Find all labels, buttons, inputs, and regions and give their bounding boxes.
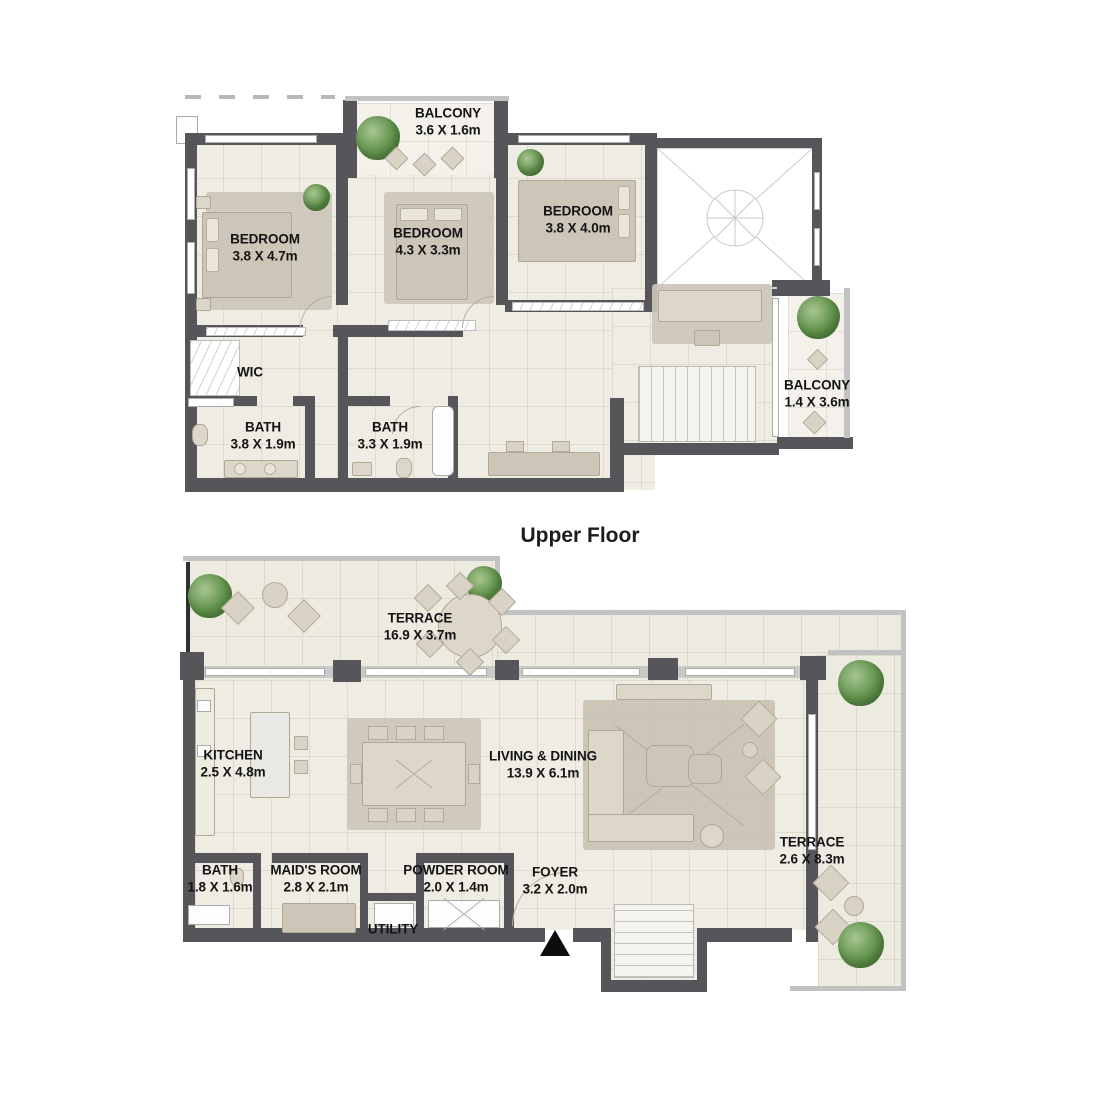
wall bbox=[601, 980, 707, 992]
sink bbox=[352, 462, 372, 476]
vanity-cross bbox=[444, 906, 484, 922]
wall bbox=[648, 138, 820, 148]
room-dims: 13.9 X 6.1m bbox=[489, 765, 597, 782]
terrace-parapet bbox=[901, 610, 906, 990]
wall bbox=[336, 133, 348, 305]
terrace-parapet bbox=[495, 610, 906, 615]
pillow bbox=[206, 218, 219, 242]
window bbox=[522, 668, 640, 676]
column bbox=[648, 658, 678, 680]
room-label-kitchen: KITCHEN 2.5 X 4.8m bbox=[200, 747, 265, 782]
toilet bbox=[396, 458, 412, 478]
sink bbox=[234, 463, 246, 475]
column bbox=[495, 660, 519, 680]
wardrobe bbox=[512, 302, 644, 311]
dining-chair bbox=[424, 808, 444, 822]
room-label-bath-middle: BATH 3.3 X 1.9m bbox=[357, 419, 422, 454]
room-label-balcony-top: BALCONY 3.6 X 1.6m bbox=[415, 105, 481, 140]
room-name: BATH bbox=[187, 862, 252, 879]
sofa bbox=[658, 290, 762, 322]
room-name: BATH bbox=[230, 419, 295, 436]
column bbox=[333, 660, 361, 682]
floor-plan: BEDROOM 3.8 X 4.7m BEDROOM 4.3 X 3.3m BE… bbox=[0, 0, 1100, 1100]
wall bbox=[707, 928, 792, 942]
room-name: BATH bbox=[357, 419, 422, 436]
room-label-maids-room: MAID'S ROOM 2.8 X 2.1m bbox=[270, 862, 361, 897]
window bbox=[808, 714, 816, 850]
coffee-table bbox=[694, 330, 720, 346]
entrance-arrow-icon bbox=[540, 930, 570, 956]
balcony-parapet bbox=[844, 288, 850, 438]
shower bbox=[188, 905, 230, 925]
window bbox=[187, 168, 195, 220]
room-dims: 1.4 X 3.6m bbox=[784, 394, 850, 411]
room-dims: 2.0 X 1.4m bbox=[403, 879, 508, 896]
table-cross bbox=[396, 758, 432, 790]
terrace-table bbox=[262, 582, 288, 608]
window bbox=[518, 135, 630, 143]
room-name: BEDROOM bbox=[230, 231, 300, 248]
room-label-foyer: FOYER 3.2 X 2.0m bbox=[522, 864, 587, 899]
room-label-wic: WIC bbox=[237, 363, 263, 380]
room-name: TERRACE bbox=[384, 610, 456, 627]
coffee-table bbox=[646, 745, 694, 787]
pillow bbox=[206, 248, 219, 272]
wall bbox=[183, 928, 545, 942]
desk bbox=[488, 452, 600, 476]
room-dims: 2.8 X 2.1m bbox=[270, 879, 361, 896]
dining-chair bbox=[350, 764, 362, 784]
dining-chair bbox=[424, 726, 444, 740]
room-name: UTILITY bbox=[368, 920, 418, 937]
bathtub bbox=[432, 406, 454, 476]
dining-chair bbox=[468, 764, 480, 784]
room-label-bedroom-middle: BEDROOM 4.3 X 3.3m bbox=[393, 225, 463, 260]
pillow bbox=[618, 186, 630, 210]
room-label-bedroom-left: BEDROOM 3.8 X 4.7m bbox=[230, 231, 300, 266]
room-dims: 16.9 X 3.7m bbox=[384, 627, 456, 644]
room-dims: 2.6 X 8.3m bbox=[779, 851, 844, 868]
chair bbox=[506, 441, 524, 452]
room-dims: 4.3 X 3.3m bbox=[393, 242, 463, 259]
room-dims: 3.8 X 1.9m bbox=[230, 436, 295, 453]
room-name: TERRACE bbox=[779, 834, 844, 851]
cropped-label-artifact bbox=[185, 95, 335, 99]
room-label-balcony-right: BALCONY 1.4 X 3.6m bbox=[784, 377, 850, 412]
room-dims: 1.8 X 1.6m bbox=[187, 879, 252, 896]
room-name: FOYER bbox=[522, 864, 587, 881]
window bbox=[205, 668, 325, 676]
terrace-parapet bbox=[828, 650, 906, 655]
boundary-line bbox=[186, 562, 190, 654]
maids-bed bbox=[282, 903, 356, 933]
room-label-terrace-right: TERRACE 2.6 X 8.3m bbox=[779, 834, 844, 869]
window bbox=[814, 172, 820, 210]
pillow bbox=[400, 208, 428, 221]
room-dims: 3.3 X 1.9m bbox=[357, 436, 422, 453]
room-name: WIC bbox=[237, 363, 263, 380]
chair bbox=[552, 441, 570, 452]
terrace-parapet bbox=[790, 986, 906, 991]
room-name: BEDROOM bbox=[543, 203, 613, 220]
wall bbox=[812, 138, 822, 290]
room-label-powder-room: POWDER ROOM 2.0 X 1.4m bbox=[403, 862, 508, 897]
room-label-living-dining: LIVING & DINING 13.9 X 6.1m bbox=[489, 748, 597, 783]
room-name: BALCONY bbox=[784, 377, 850, 394]
void-cross-icon bbox=[657, 148, 813, 288]
shower bbox=[188, 398, 234, 407]
room-label-utility: UTILITY bbox=[368, 920, 418, 937]
room-dims: 3.6 X 1.6m bbox=[415, 122, 481, 139]
room-name: BALCONY bbox=[415, 105, 481, 122]
room-name: LIVING & DINING bbox=[489, 748, 597, 765]
room-label-bedroom-right: BEDROOM 3.8 X 4.0m bbox=[543, 203, 613, 238]
pillow bbox=[618, 214, 630, 238]
dining-chair bbox=[396, 726, 416, 740]
room-name: POWDER ROOM bbox=[403, 862, 508, 879]
window bbox=[205, 135, 317, 143]
sink bbox=[264, 463, 276, 475]
wall bbox=[305, 396, 315, 490]
wall bbox=[185, 478, 624, 492]
room-label-terrace-top: TERRACE 16.9 X 3.7m bbox=[384, 610, 456, 645]
stool bbox=[294, 736, 308, 750]
coffee-table bbox=[688, 754, 722, 784]
wall bbox=[772, 280, 830, 296]
room-dims: 3.8 X 4.0m bbox=[543, 220, 613, 237]
window bbox=[772, 298, 779, 437]
tv-console bbox=[616, 684, 712, 700]
wall bbox=[253, 863, 261, 928]
terrace-table bbox=[844, 896, 864, 916]
dining-chair bbox=[368, 808, 388, 822]
room-label-bath-left: BATH 3.8 X 1.9m bbox=[230, 419, 295, 454]
wall bbox=[496, 133, 508, 305]
window bbox=[814, 228, 820, 266]
room-name: KITCHEN bbox=[200, 747, 265, 764]
room-label-bath: BATH 1.8 X 1.6m bbox=[187, 862, 252, 897]
nightstand bbox=[196, 298, 211, 311]
toilet bbox=[192, 424, 208, 446]
balcony-parapet bbox=[345, 96, 509, 101]
room-name: BEDROOM bbox=[393, 225, 463, 242]
wall bbox=[338, 396, 390, 406]
dining-chair bbox=[396, 808, 416, 822]
pillow bbox=[434, 208, 462, 221]
room-dims: 3.8 X 4.7m bbox=[230, 248, 300, 265]
wall bbox=[612, 443, 779, 455]
side-table bbox=[742, 742, 758, 758]
room-dims: 2.5 X 4.8m bbox=[200, 764, 265, 781]
stool bbox=[294, 760, 308, 774]
floor-caption: Upper Floor bbox=[521, 524, 640, 548]
pouf bbox=[700, 824, 724, 848]
room-name: MAID'S ROOM bbox=[270, 862, 361, 879]
wall bbox=[777, 437, 853, 449]
wall bbox=[183, 666, 195, 942]
nightstand bbox=[196, 196, 211, 209]
staircase bbox=[614, 904, 694, 978]
wic-closet bbox=[190, 340, 240, 396]
window bbox=[685, 668, 795, 676]
room-dims: 3.2 X 2.0m bbox=[522, 881, 587, 898]
sofa bbox=[588, 814, 694, 842]
dining-chair bbox=[368, 726, 388, 740]
staircase bbox=[638, 366, 756, 442]
wardrobe bbox=[206, 327, 306, 336]
window bbox=[187, 242, 195, 294]
terrace-parapet bbox=[183, 556, 499, 561]
appliance bbox=[197, 700, 211, 712]
wall bbox=[338, 337, 348, 490]
